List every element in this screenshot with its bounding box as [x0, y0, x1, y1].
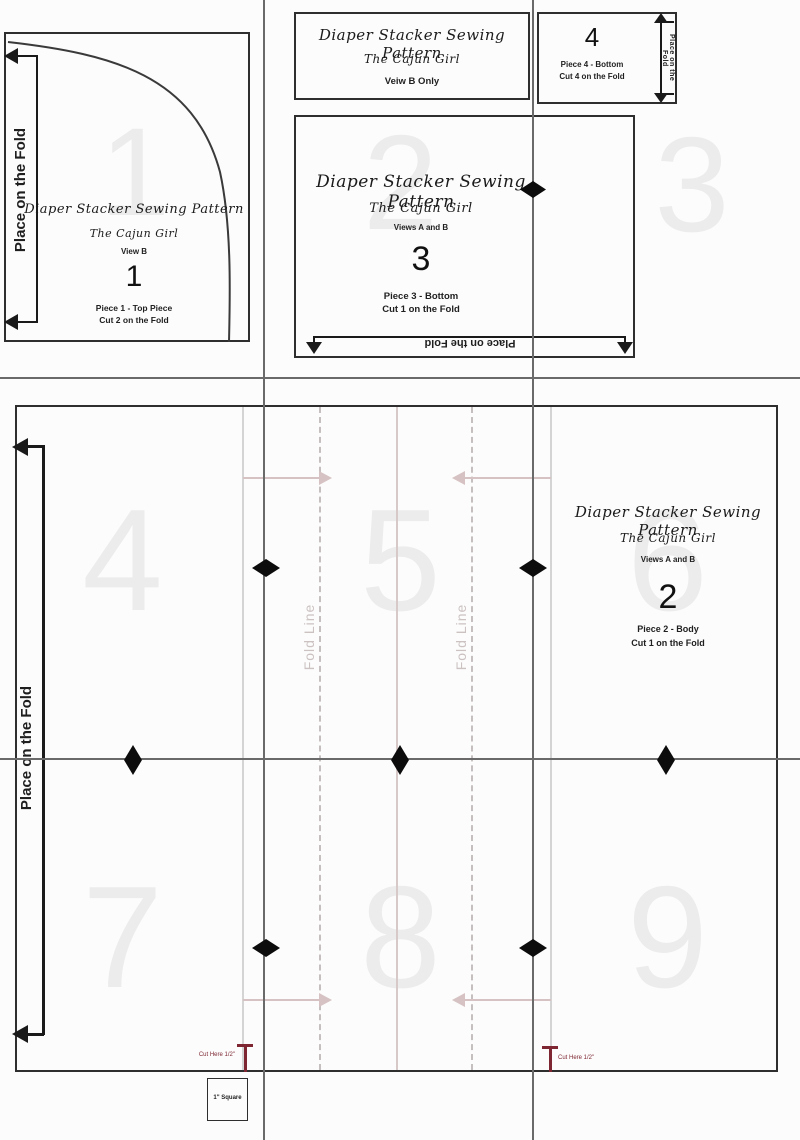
piece-cut-instruction: Cut 4 on the Fold: [537, 72, 647, 81]
fold-arrow-left-icon: [4, 314, 18, 330]
fold-direction-line: [465, 477, 551, 479]
test-square-label: 1" Square: [207, 1095, 248, 1101]
piece-cut-instruction: Cut 2 on the Fold: [24, 315, 244, 325]
fold-arrow-left-icon: [4, 48, 18, 64]
fold-bracket-line: [16, 55, 38, 57]
fold-line-label: Fold Line: [301, 577, 317, 697]
ghost-page-number: 9: [595, 862, 740, 1012]
piece1-cut-curve: [4, 32, 250, 342]
view-label: Veiw B Only: [296, 76, 528, 87]
cut-here-label: Cut Here 1/2": [558, 1055, 603, 1061]
fold-line-dashed: [319, 407, 321, 1070]
ghost-page-number: 5: [328, 485, 473, 635]
brand-name: The Cajun Girl: [294, 201, 548, 216]
piece-number: 4: [537, 22, 647, 53]
page-grid-line-horizontal: [0, 377, 800, 379]
center-guide-line: [396, 407, 398, 1070]
brand-name: The Cajun Girl: [296, 52, 528, 66]
pattern-title: Diaper Stacker Sewing Pattern: [24, 202, 244, 217]
fold-bracket-line: [42, 445, 45, 1035]
piece-name: Piece 4 - Bottom: [537, 60, 647, 69]
fold-direction-arrow-right-icon: [319, 993, 332, 1007]
ghost-page-number: 8: [328, 862, 473, 1012]
place-on-fold-label: Place on the Fold: [390, 337, 550, 349]
piece-name: Piece 1 - Top Piece: [24, 303, 244, 313]
ghost-page-number: 3: [622, 110, 762, 260]
brand-name: The Cajun Girl: [24, 227, 244, 240]
sewing-pattern-sheet: 1 2 3 4 5 6 7 8 9 Place on the Fold Diap…: [0, 0, 800, 1140]
fold-arrow-down-icon: [654, 93, 668, 103]
fold-direction-arrow-left-icon: [452, 993, 465, 1007]
piece-name: Piece 3 - Bottom: [294, 291, 548, 302]
view-label: View B: [24, 247, 244, 256]
cut-here-mark: [549, 1046, 552, 1072]
fold-arrow-up-icon: [654, 13, 668, 23]
piece-number: 1: [24, 260, 244, 294]
fold-direction-arrow-right-icon: [319, 471, 332, 485]
cut-here-label: Cut Here 1/2": [193, 1052, 235, 1058]
ghost-page-number: 4: [50, 485, 195, 635]
fold-direction-line: [465, 999, 551, 1001]
piece-name: Piece 2 - Body: [558, 624, 778, 634]
fold-bracket-line: [26, 1033, 44, 1036]
cut-here-mark: [244, 1044, 247, 1072]
fold-line-dashed: [471, 407, 473, 1070]
fold-arrow-down-icon: [617, 342, 633, 354]
piece-cut-instruction: Cut 1 on the Fold: [294, 304, 548, 315]
piece-number: 2: [558, 578, 778, 617]
brand-name: The Cajun Girl: [558, 531, 778, 545]
fold-arrow-left-icon: [12, 1025, 28, 1043]
fold-direction-line: [243, 999, 321, 1001]
place-on-fold-label: Place on the Fold: [18, 663, 34, 833]
piece-cut-instruction: Cut 1 on the Fold: [558, 638, 778, 648]
seam-guide-line: [242, 407, 244, 1070]
fold-arrow-down-icon: [306, 342, 322, 354]
place-on-fold-label: Place on the Fold: [12, 115, 28, 265]
place-on-fold-label: Place on the Fold: [662, 26, 675, 90]
fold-arrow-left-icon: [12, 438, 28, 456]
view-label: Views A and B: [294, 223, 548, 232]
view-label: Views A and B: [558, 555, 778, 564]
ghost-page-number: 7: [50, 862, 195, 1012]
fold-line-label: Fold Line: [453, 577, 469, 697]
piece-number: 3: [294, 240, 548, 279]
fold-direction-arrow-left-icon: [452, 471, 465, 485]
fold-direction-line: [243, 477, 321, 479]
seam-guide-line: [550, 407, 552, 1070]
